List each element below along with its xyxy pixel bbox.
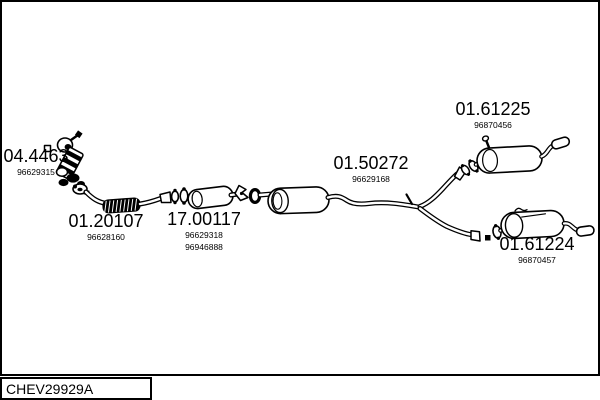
part-number: 96629315 [0, 166, 81, 178]
part-label-17-00117: 17.00117 96629318 96946888 [159, 210, 249, 253]
part-number: 96870457 [492, 254, 582, 266]
part-code: 17.00117 [159, 210, 249, 229]
part-code: 01.61224 [492, 235, 582, 254]
part-label-01-20107: 01.20107 96628160 [61, 212, 151, 243]
tailpipe-branch-upper [420, 158, 482, 207]
exhaust-tip-upper [551, 136, 571, 150]
gasket-square [485, 235, 491, 241]
exhaust-diagram [0, 0, 600, 378]
intermediate-pipe [328, 195, 421, 208]
drawing-code: CHEV29929A [6, 381, 93, 397]
part-number: 96628160 [61, 231, 151, 243]
part-code: 01.50272 [326, 154, 416, 173]
part-number: 96870456 [448, 119, 538, 131]
part-center-muffler [268, 186, 330, 214]
part-code: 01.20107 [61, 212, 151, 231]
part-number: 96629318 [159, 229, 249, 241]
part-catalytic-converter [187, 185, 241, 209]
part-label-04-4463: 04.4463 96629315 [0, 147, 81, 178]
part-number: 96629168 [326, 173, 416, 185]
part-label-01-50272: 01.50272 96629168 [326, 154, 416, 185]
part-number: 96946888 [159, 241, 249, 253]
part-label-01-61224: 01.61224 96870457 [492, 235, 582, 266]
part-code: 04.4463 [0, 147, 81, 166]
hanger-bracket [235, 186, 248, 201]
part-code: 01.61225 [448, 100, 538, 119]
clamp-rings-front [172, 187, 188, 205]
title-block: CHEV29929A [0, 377, 152, 400]
hanger-tick [407, 195, 413, 205]
part-rear-muffler-upper [476, 135, 570, 173]
part-label-01-61225: 01.61225 96870456 [448, 100, 538, 131]
